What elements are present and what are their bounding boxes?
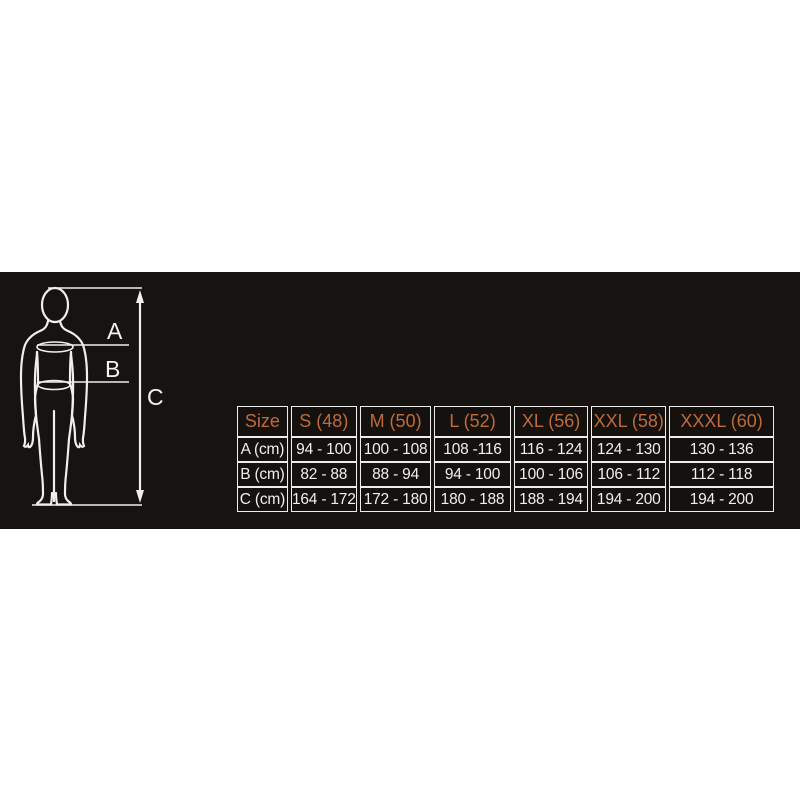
header-cell-l: L (52) [434,406,510,437]
value-cell: 94 - 100 [291,437,357,462]
row-label: C (cm) [237,487,288,512]
value-cell: 88 - 94 [360,462,432,487]
value-cell: 172 - 180 [360,487,432,512]
header-cell-s: S (48) [291,406,357,437]
value-cell: 82 - 88 [291,462,357,487]
size-table-container: Size S (48) M (50) L (52) XL (56) XXL (5… [234,406,777,512]
row-label: B (cm) [237,462,288,487]
measurement-label-a: A [107,318,123,344]
header-cell-size: Size [237,406,288,437]
value-cell: 100 - 108 [360,437,432,462]
value-cell: 164 - 172 [291,487,357,512]
value-cell: 108 -116 [434,437,510,462]
figure-head-outline [42,288,68,322]
value-cell: 194 - 200 [669,487,774,512]
black-band: A B C Size S (48) M (50) L (52) XL (56) … [0,272,800,529]
value-cell: 130 - 136 [669,437,774,462]
figure-left-arm-outline [21,321,48,447]
size-table: Size S (48) M (50) L (52) XL (56) XXL (5… [234,406,777,512]
body-measurement-diagram: A B C [10,275,175,510]
header-cell-xxl: XXL (58) [591,406,666,437]
arrow-down-icon [136,490,144,503]
value-cell: 180 - 188 [434,487,510,512]
value-cell: 106 - 112 [591,462,666,487]
row-label: A (cm) [237,437,288,462]
value-cell: 100 - 106 [514,462,589,487]
header-cell-xl: XL (56) [514,406,589,437]
figure-right-arm-outline [60,321,87,447]
measurement-label-c: C [147,384,164,410]
size-chart-page: A B C Size S (48) M (50) L (52) XL (56) … [0,0,800,800]
value-cell: 112 - 118 [669,462,774,487]
table-row-a: A (cm) 94 - 100 100 - 108 108 -116 116 -… [237,437,774,462]
header-cell-xxxl: XXXL (60) [669,406,774,437]
chest-measure-ellipse [37,342,73,352]
value-cell: 194 - 200 [591,487,666,512]
table-row-c: C (cm) 164 - 172 172 - 180 180 - 188 188… [237,487,774,512]
value-cell: 116 - 124 [514,437,589,462]
table-row-b: B (cm) 82 - 88 88 - 94 94 - 100 100 - 10… [237,462,774,487]
value-cell: 188 - 194 [514,487,589,512]
arrow-up-icon [136,290,144,303]
value-cell: 124 - 130 [591,437,666,462]
measurement-label-b: B [105,356,120,382]
value-cell: 94 - 100 [434,462,510,487]
size-table-header-row: Size S (48) M (50) L (52) XL (56) XXL (5… [237,406,774,437]
figure-torso-right-leg-outline [56,352,73,505]
figure-torso-left-leg-outline [35,352,52,505]
header-cell-m: M (50) [360,406,432,437]
